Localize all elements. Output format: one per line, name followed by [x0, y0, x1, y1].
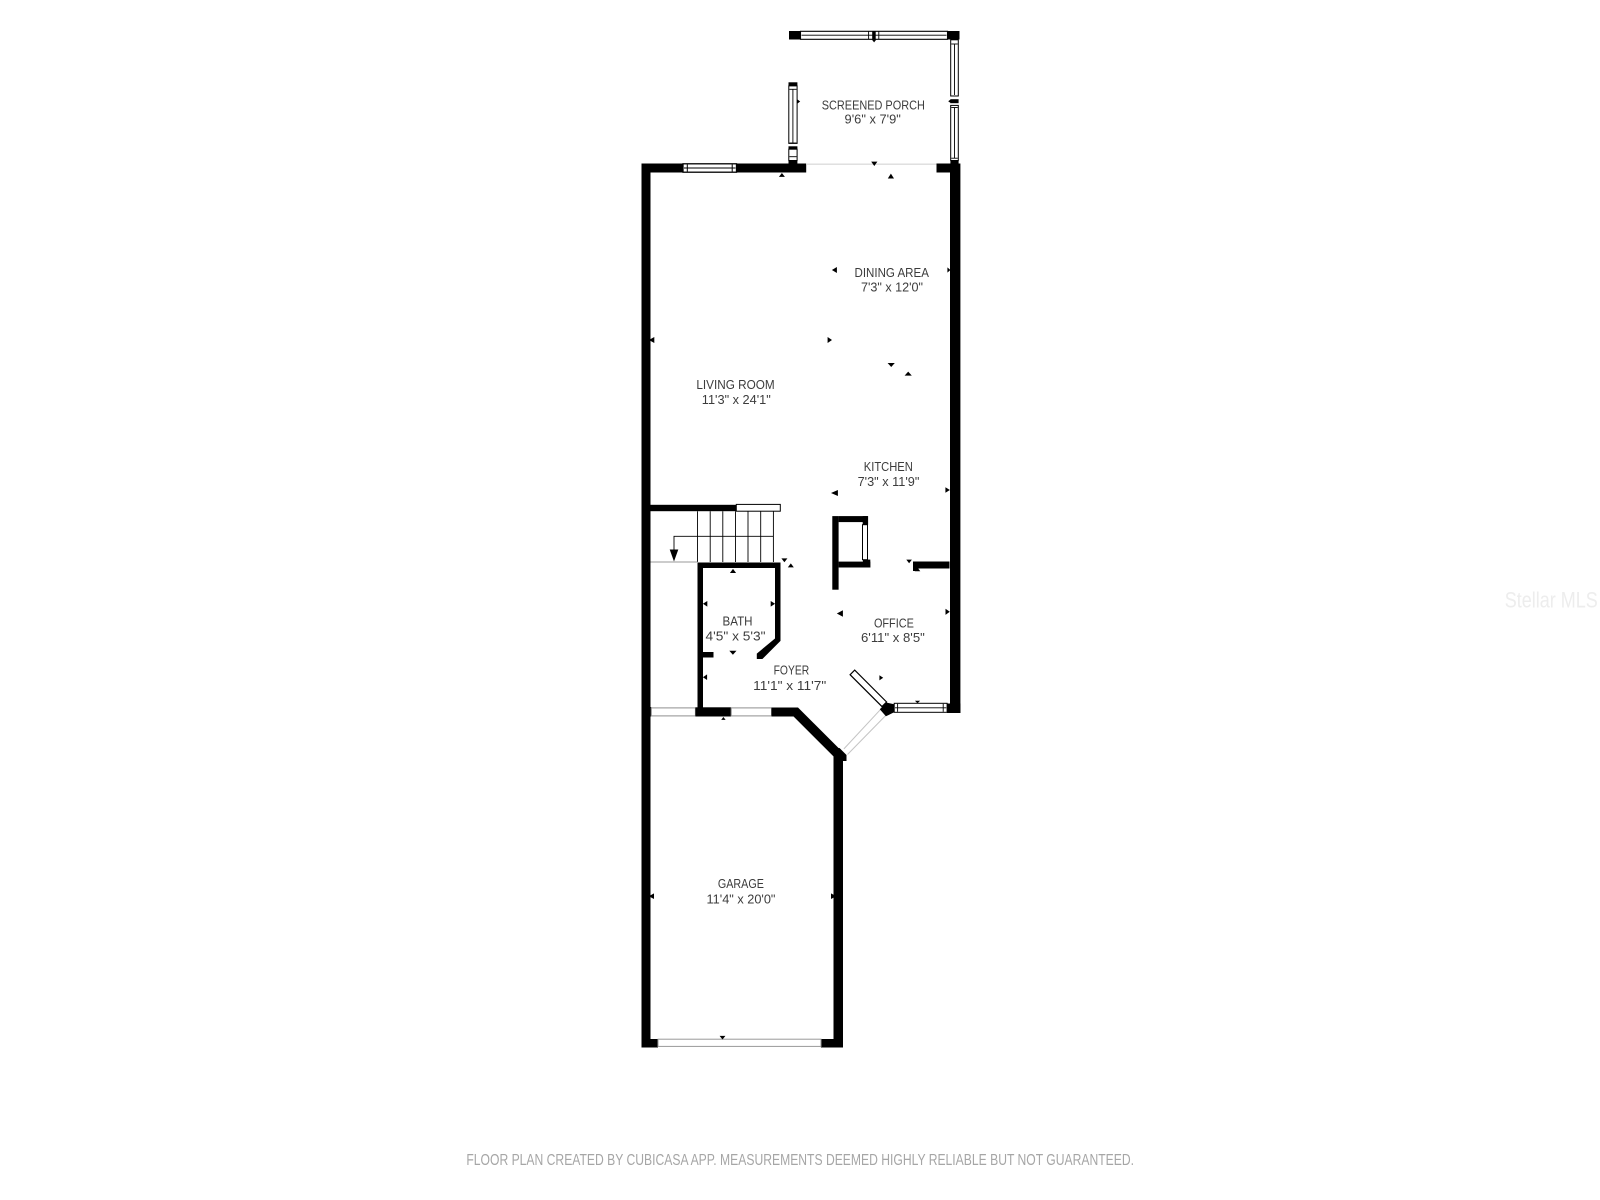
svg-text:LIVING ROOM: LIVING ROOM — [696, 377, 774, 392]
svg-text:SCREENED PORCH: SCREENED PORCH — [822, 98, 925, 113]
svg-text:OFFICE: OFFICE — [874, 615, 914, 630]
svg-text:FLOOR PLAN CREATED BY CUBICASA: FLOOR PLAN CREATED BY CUBICASA APP. MEAS… — [466, 1152, 1134, 1169]
svg-text:KITCHEN: KITCHEN — [864, 459, 913, 474]
svg-text:11'3" x 24'1": 11'3" x 24'1" — [702, 392, 771, 407]
svg-text:4'5" x 5'3": 4'5" x 5'3" — [706, 629, 766, 644]
svg-text:11'1" x 11'7": 11'1" x 11'7" — [753, 678, 826, 693]
svg-text:9'6" x 7'9": 9'6" x 7'9" — [845, 112, 901, 127]
svg-text:Stellar MLS: Stellar MLS — [1505, 588, 1598, 613]
svg-text:7'3" x 11'9": 7'3" x 11'9" — [858, 474, 920, 489]
svg-text:GARAGE: GARAGE — [718, 876, 764, 891]
svg-text:FOYER: FOYER — [774, 663, 810, 678]
svg-text:DINING AREA: DINING AREA — [855, 265, 930, 280]
svg-text:11'4" x 20'0": 11'4" x 20'0" — [707, 892, 776, 907]
svg-text:BATH: BATH — [723, 613, 753, 628]
svg-text:7'3" x 12'0": 7'3" x 12'0" — [861, 280, 923, 295]
svg-text:6'11" x 8'5": 6'11" x 8'5" — [861, 630, 925, 645]
